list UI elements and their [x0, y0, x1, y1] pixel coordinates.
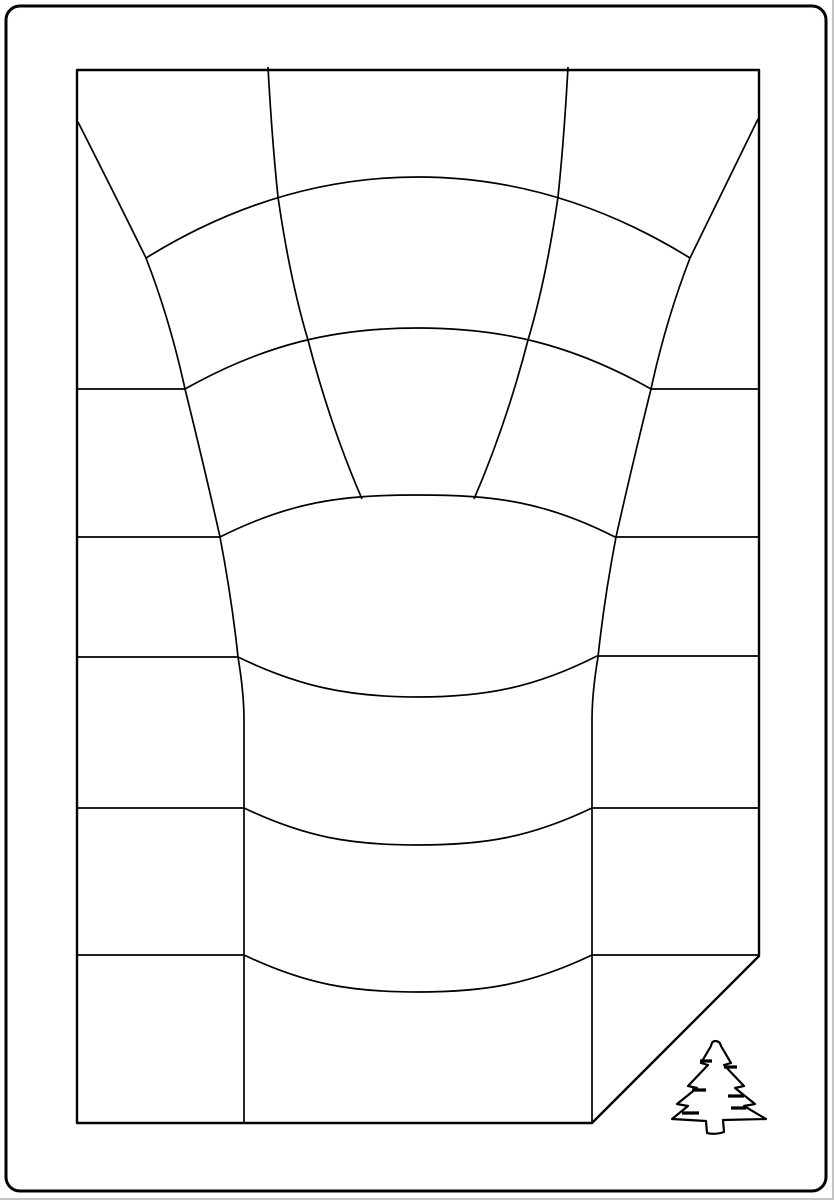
pine-tree-icon	[672, 1041, 766, 1134]
arc-row-4-sag	[244, 808, 592, 845]
arc-top-dome	[146, 177, 690, 258]
arc-row-3-sag	[238, 656, 597, 697]
arc-row-2-dome	[220, 495, 615, 537]
radial-right-outer	[592, 119, 758, 1123]
sheet-outline-with-folded-corner	[77, 70, 759, 1123]
radial-right-inner	[474, 67, 568, 499]
well-perspective-grid-drawing	[0, 0, 834, 1200]
arc-row-1-dome	[185, 328, 651, 389]
radial-left-outer	[78, 122, 244, 1123]
arc-row-5-sag	[244, 955, 592, 992]
radial-left-inner	[268, 67, 362, 499]
scanned-line-drawing-page	[0, 0, 834, 1200]
